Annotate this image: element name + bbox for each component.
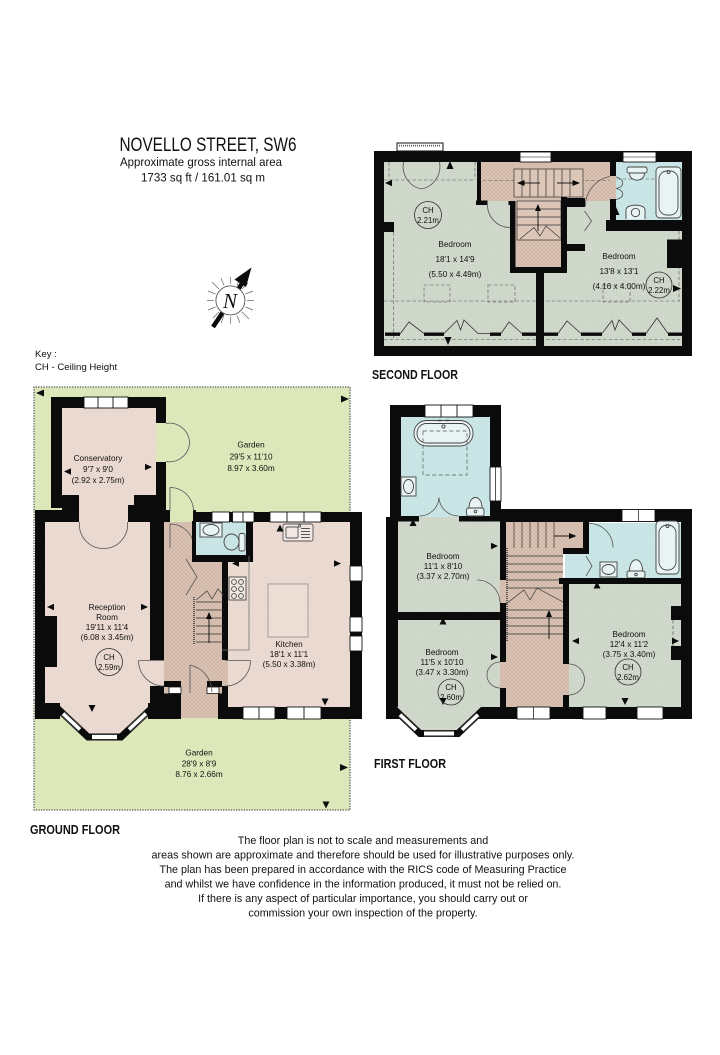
svg-text:Bedroom: Bedroom <box>426 552 459 561</box>
svg-text:(6.08 x 3.45m): (6.08 x 3.45m) <box>81 633 134 642</box>
svg-text:19'11 x 11'4: 19'11 x 11'4 <box>86 623 129 632</box>
svg-text:CH: CH <box>653 276 664 285</box>
svg-text:Bedroom: Bedroom <box>602 252 635 261</box>
svg-text:NOVELLO STREET, SW6: NOVELLO STREET, SW6 <box>120 135 297 156</box>
svg-text:areas shown are approximate an: areas shown are approximate and therefor… <box>152 850 575 862</box>
svg-text:If there is any aspect of part: If there is any aspect of particular imp… <box>198 893 528 905</box>
svg-text:CH: CH <box>103 653 114 662</box>
svg-text:CH: CH <box>422 206 433 215</box>
svg-text:28'9 x 8'9: 28'9 x 8'9 <box>182 760 217 769</box>
svg-text:N: N <box>222 289 238 313</box>
svg-text:CH - Ceiling Height: CH - Ceiling Height <box>35 362 117 373</box>
svg-text:CH: CH <box>445 683 456 692</box>
svg-text:(5.50 x 3.38m): (5.50 x 3.38m) <box>263 660 316 669</box>
svg-text:(4.16 x 4.00m): (4.16 x 4.00m) <box>593 282 646 291</box>
svg-text:8.97 x 3.60m: 8.97 x 3.60m <box>227 464 275 473</box>
svg-text:29'5 x 11'10: 29'5 x 11'10 <box>229 453 272 462</box>
svg-text:Kitchen: Kitchen <box>275 640 303 649</box>
svg-text:Garden: Garden <box>237 441 265 450</box>
svg-text:(3.75 x 3.40m): (3.75 x 3.40m) <box>603 650 656 659</box>
svg-text:13'8 x 13'1: 13'8 x 13'1 <box>599 267 639 276</box>
svg-text:Garden: Garden <box>185 749 213 758</box>
svg-text:CH: CH <box>622 663 633 672</box>
svg-text:9'7 x 9'0: 9'7 x 9'0 <box>83 465 113 474</box>
svg-text:The plan has been prepared in: The plan has been prepared in accordance… <box>160 864 567 876</box>
svg-text:11'5 x 10'10: 11'5 x 10'10 <box>420 658 463 667</box>
svg-text:GROUND FLOOR: GROUND FLOOR <box>30 822 121 837</box>
svg-text:Bedroom: Bedroom <box>438 240 471 249</box>
svg-text:18'1 x 14'9: 18'1 x 14'9 <box>435 255 475 264</box>
svg-text:Room: Room <box>96 613 118 622</box>
svg-text:8.76 x 2.66m: 8.76 x 2.66m <box>175 770 223 779</box>
svg-text:SECOND FLOOR: SECOND FLOOR <box>372 367 458 382</box>
svg-text:Reception: Reception <box>89 603 126 612</box>
svg-text:2.21m: 2.21m <box>417 216 439 225</box>
svg-text:Bedroom: Bedroom <box>425 648 458 657</box>
svg-text:(2.92 x 2.75m): (2.92 x 2.75m) <box>72 476 125 485</box>
svg-text:2.60m: 2.60m <box>440 693 462 702</box>
svg-text:commission your own inspection: commission your own inspection of the pr… <box>248 908 477 920</box>
svg-text:and whilst we have confidence: and whilst we have confidence in the inf… <box>165 879 562 891</box>
svg-text:12'4 x 11'2: 12'4 x 11'2 <box>610 640 649 649</box>
svg-text:2.22m: 2.22m <box>648 286 670 295</box>
svg-text:Approximate gross internal are: Approximate gross internal area <box>120 155 282 169</box>
svg-text:2.62m: 2.62m <box>617 673 639 682</box>
svg-text:FIRST FLOOR: FIRST FLOOR <box>374 756 446 771</box>
svg-text:2.59m: 2.59m <box>98 663 120 672</box>
svg-text:1733 sq ft / 161.01 sq m: 1733 sq ft / 161.01 sq m <box>141 171 265 185</box>
svg-text:(3.37 x 2.70m): (3.37 x 2.70m) <box>417 572 470 581</box>
svg-text:(3.47 x 3.30m): (3.47 x 3.30m) <box>416 668 469 677</box>
svg-text:(5.50 x 4.49m): (5.50 x 4.49m) <box>429 270 482 279</box>
svg-text:11'1 x 8'10: 11'1 x 8'10 <box>424 562 463 571</box>
svg-text:Key :: Key : <box>35 349 57 360</box>
svg-text:Conservatory: Conservatory <box>74 454 124 463</box>
svg-text:The floor plan is not to scale: The floor plan is not to scale and measu… <box>238 835 488 847</box>
svg-text:18'1 x 11'1: 18'1 x 11'1 <box>270 650 309 659</box>
svg-text:Bedroom: Bedroom <box>612 630 645 639</box>
